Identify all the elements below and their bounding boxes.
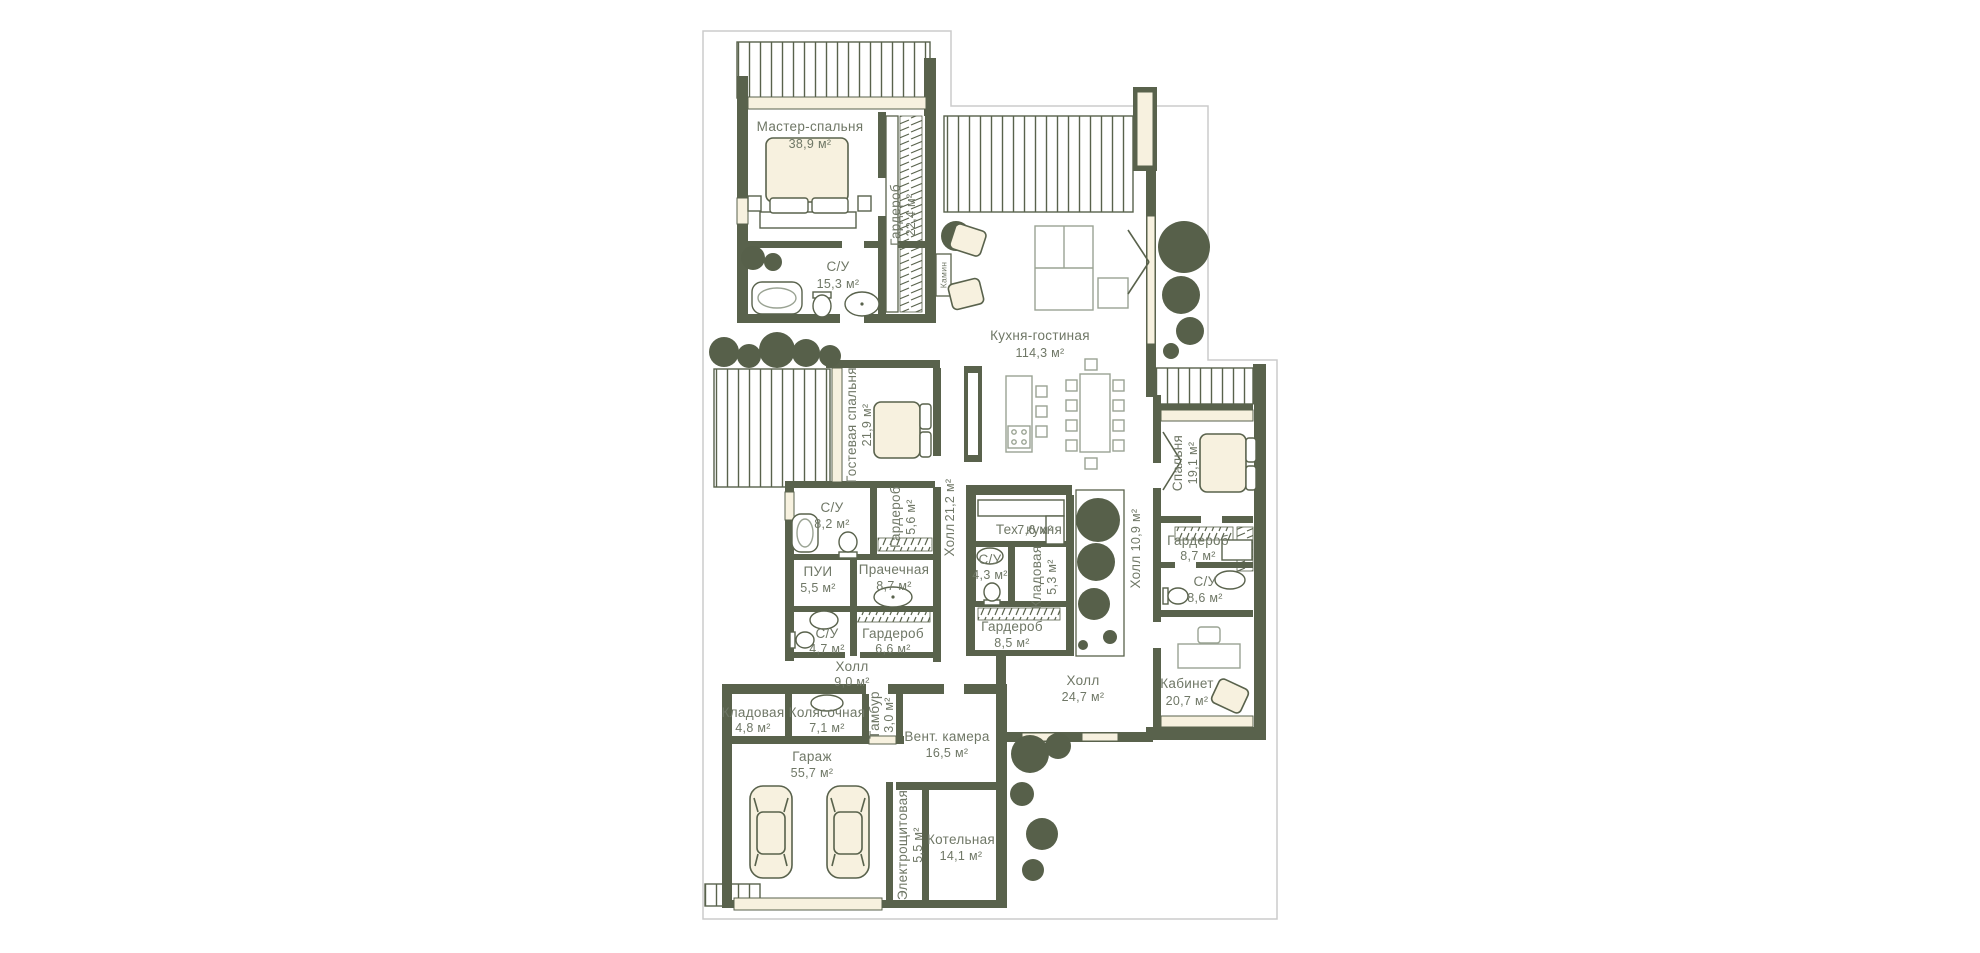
room-label-hall-109: Холл — [1128, 555, 1143, 588]
room-label-vent: Вент. камера — [904, 729, 989, 744]
room-area-guest-bedroom: 21,9 м² — [860, 404, 874, 447]
room-label-su-82: С/У — [821, 500, 844, 515]
room-area-hall-212: 21,2 м² — [943, 479, 957, 522]
room-label-wardrobe-85: Гардероб — [981, 619, 1043, 634]
room-area-wardrobe-master: 22,4 м² — [904, 194, 918, 237]
planter — [1076, 490, 1124, 656]
room-area-kitchen-living: 114,3 м² — [1016, 346, 1065, 360]
room-label-kitchen-living: Кухня-гостиная — [990, 328, 1090, 343]
room-label-electrical: Электрощитовая — [895, 790, 910, 900]
car-icon — [827, 786, 869, 878]
room-label-guest-bedroom: Гостевая спальня — [844, 367, 859, 483]
room-area-su-master: 15,3 м² — [817, 277, 860, 291]
terrace-door-symbol — [1128, 230, 1149, 294]
room-area-wardrobe-87: 8,7 м² — [1180, 549, 1215, 563]
room-label-office: Кабинет — [1160, 676, 1213, 691]
room-area-wardrobe-66: 6,6 м² — [875, 642, 910, 656]
room-area-hall-90: 9,0 м² — [834, 675, 869, 689]
room-area-pui: 5,5 м² — [800, 581, 835, 595]
room-area-master-bedroom: 38,9 м² — [789, 137, 832, 151]
room-area-storage-53: 5,3 м² — [1045, 559, 1059, 594]
guest-bed-icon — [874, 402, 931, 458]
floor-plan-page: Камин — [0, 0, 1980, 953]
room-label-hall-212: Холл — [942, 523, 957, 556]
room-label-su-47: С/У — [816, 626, 839, 641]
floor-plan: Камин — [0, 0, 1980, 953]
room-area-su-86: 8,6 м² — [1187, 591, 1222, 605]
room-label-storage-48: Кладовая — [722, 705, 785, 720]
room-area-su-82: 8,2 м² — [814, 517, 849, 531]
room-label-su-86: С/У — [1194, 574, 1217, 589]
fireplace-label: Камин — [939, 262, 949, 288]
room-label-tambour: Тамбур — [867, 691, 882, 739]
room-area-garage: 55,7 м² — [791, 766, 834, 780]
room-label-pui: ПУИ — [804, 564, 833, 579]
kitchen-island-icon — [1006, 376, 1047, 452]
room-area-electrical: 5,5 м² — [911, 827, 925, 862]
room-area-storage-48: 4,8 м² — [735, 721, 770, 735]
master-bed-icon — [748, 138, 871, 228]
room-area-office: 20,7 м² — [1166, 694, 1209, 708]
room-area-stroller: 7,1 м² — [809, 721, 844, 735]
room-area-bedroom: 19,1 м² — [1186, 442, 1200, 485]
room-label-wardrobe-66: Гардероб — [862, 626, 924, 641]
room-area-tech-kitchen: 7,6 м² — [1017, 523, 1052, 537]
room-area-boiler: 14,1 м² — [940, 849, 983, 863]
room-area-vent: 16,5 м² — [926, 746, 969, 760]
room-label-wardrobe-master: Гардероб — [888, 184, 903, 246]
room-area-tambour: 3,0 м² — [882, 697, 896, 732]
room-label-boiler: Котельная — [927, 832, 995, 847]
room-label-wardrobe-87: Гардероб — [1167, 533, 1229, 548]
room-label-hall-247: Холл — [1066, 673, 1099, 688]
room-area-su-47: 4,7 м² — [809, 642, 844, 656]
room-area-laundry: 8,7 м² — [876, 579, 911, 593]
room-label-su-43: С/У — [979, 552, 1002, 567]
room-label-garage: Гараж — [792, 749, 832, 764]
room-area-wardrobe-56: 5,6 м² — [904, 499, 918, 534]
room-label-su-master: С/У — [827, 259, 850, 274]
room-area-hall-109: 10,9 м² — [1129, 509, 1143, 552]
car-icon — [750, 786, 792, 878]
dining-table-icon — [1066, 359, 1124, 469]
room-area-wardrobe-85: 8,5 м² — [994, 636, 1029, 650]
room-label-hall-90: Холл — [835, 659, 868, 674]
room-label-bedroom: Спальня — [1170, 435, 1185, 491]
room-label-wardrobe-56: Гардероб — [888, 486, 903, 548]
room-area-hall-247: 24,7 м² — [1062, 690, 1105, 704]
room-label-laundry: Прачечная — [859, 562, 930, 577]
room-label-stroller: Колясочная — [789, 705, 866, 720]
room-label-master-bedroom: Мастер-спальня — [757, 119, 864, 134]
room-label-storage-53: Кладовая — [1029, 546, 1044, 609]
room-area-su-43: 4,3 м² — [972, 568, 1007, 582]
master-bath-fixtures — [752, 282, 879, 317]
